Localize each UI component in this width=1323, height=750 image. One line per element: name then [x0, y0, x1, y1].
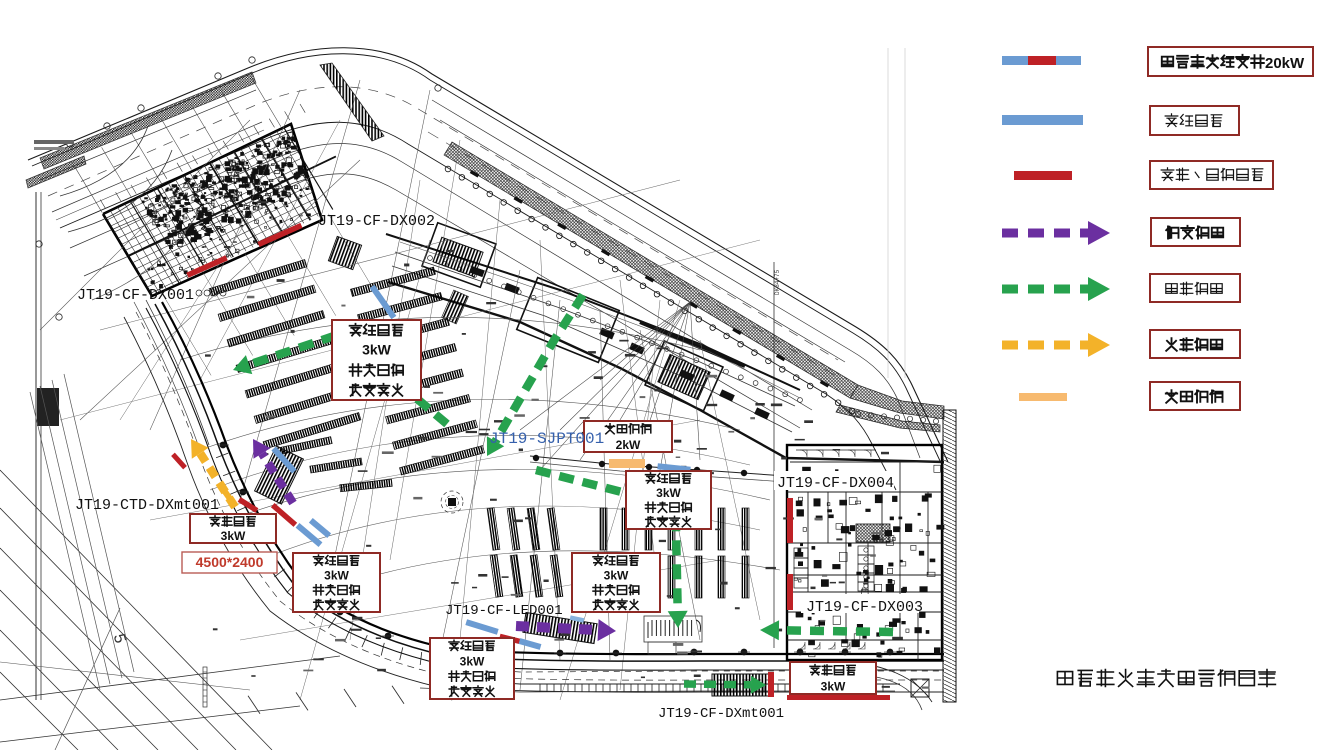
svg-text:JT19-CF-DX001: JT19-CF-DX001 [77, 287, 194, 304]
svg-text:JT19-CF-DX004: JT19-CF-DX004 [777, 475, 894, 492]
svg-text:3kW: 3kW [362, 342, 392, 358]
svg-text:3kW: 3kW [821, 680, 846, 694]
svg-text:3kW: 3kW [656, 486, 681, 500]
svg-text:JT19-CF-DX002: JT19-CF-DX002 [318, 213, 435, 230]
svg-text:JT19-CTD-DXmt001: JT19-CTD-DXmt001 [75, 497, 219, 514]
svg-text:4500*2400: 4500*2400 [196, 554, 264, 570]
svg-text:JT19-CF-LED001: JT19-CF-LED001 [445, 603, 563, 619]
svg-text:JT19-CF-DXmt001: JT19-CF-DXmt001 [658, 706, 784, 722]
svg-text:JT19-CF-DX003: JT19-CF-DX003 [806, 599, 923, 616]
svg-text:3kW: 3kW [460, 654, 485, 668]
svg-text:DK84+75: DK84+75 [774, 269, 781, 295]
svg-text:3kW: 3kW [221, 529, 246, 543]
svg-text:JT19-SJPT001: JT19-SJPT001 [489, 430, 604, 448]
svg-text:3kW: 3kW [604, 569, 629, 583]
svg-text:3kW: 3kW [324, 569, 349, 583]
svg-text:2kW: 2kW [616, 438, 641, 452]
svg-text:20kW: 20kW [1265, 55, 1305, 72]
